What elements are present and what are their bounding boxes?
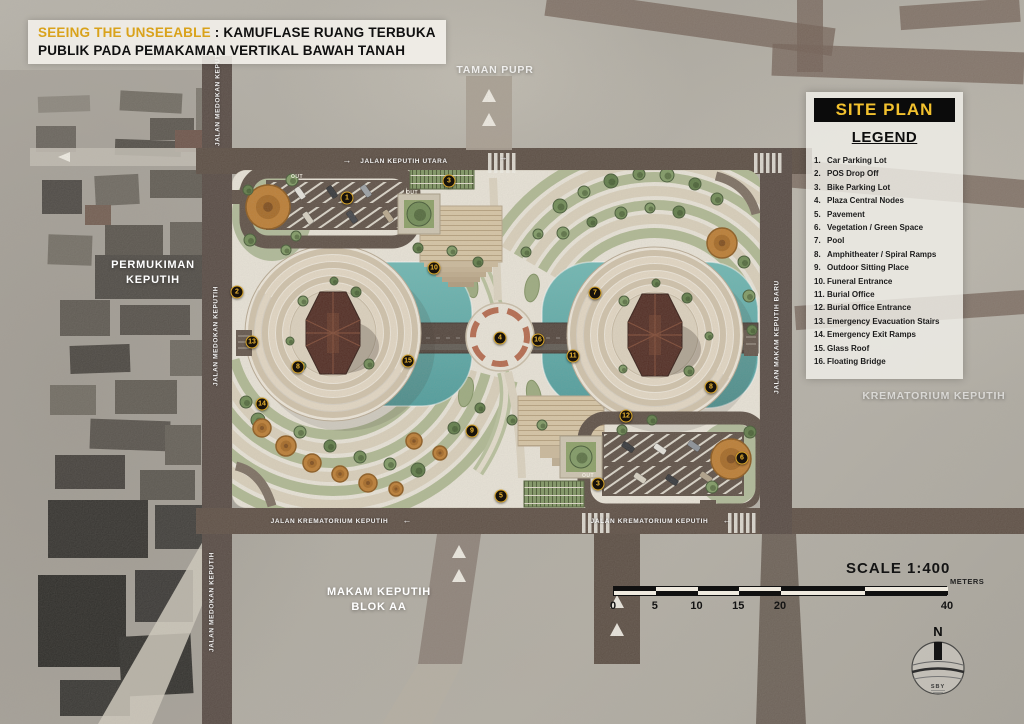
legend-item-label: Plaza Central Nodes xyxy=(827,194,957,207)
title-line1-rest: KAMUFLASE RUANG TERBUKA xyxy=(223,25,435,40)
street-label-medokan-keputih: JALAN MEDOKAN KEPUTIH xyxy=(213,286,220,386)
legend-item-number: 3. xyxy=(812,181,827,194)
out-marking: OUT xyxy=(406,190,418,196)
legend-item-number: 10. xyxy=(812,275,827,288)
map-marker-1: 1 xyxy=(341,192,354,205)
map-marker-14: 14 xyxy=(256,398,269,411)
map-marker-3: 3 xyxy=(443,175,456,188)
legend-item-number: 13. xyxy=(812,315,827,328)
scale-segment xyxy=(614,591,656,595)
legend-item-label: Outdoor Sitting Place xyxy=(827,261,957,274)
street-label-makam-keputih-baru: JALAN MAKAM KEPUTIH BARU xyxy=(774,280,781,394)
legend-item-number: 8. xyxy=(812,248,827,261)
legend-item-number: 7. xyxy=(812,234,827,247)
area-label-permukiman-keputih: PERMUKIMAN KEPUTIH xyxy=(92,258,214,288)
legend-item: 11.Burial Office xyxy=(812,288,957,301)
legend-item: 10.Funeral Entrance xyxy=(812,275,957,288)
legend-item-label: Car Parking Lot xyxy=(827,154,957,167)
scale-segments xyxy=(613,586,947,596)
legend-item: 12.Burial Office Entrance xyxy=(812,301,957,314)
map-marker-9: 9 xyxy=(466,425,479,438)
scale-tick: 5 xyxy=(652,600,658,612)
map-marker-3: 3 xyxy=(592,478,605,491)
legend-item-number: 14. xyxy=(812,328,827,341)
map-marker-5: 5 xyxy=(495,490,508,503)
area-label-taman-pupr: TAMAN PUPR xyxy=(440,64,550,76)
legend-item-label: Amphitheater / Spiral Ramps xyxy=(827,248,957,261)
street-label-medokan-keputih: JALAN MEDOKAN KEPUTIH xyxy=(209,552,216,652)
compass-city-label: SBY xyxy=(931,684,945,690)
legend-item-number: 12. xyxy=(812,301,827,314)
map-marker-6: 6 xyxy=(736,452,749,465)
out-marking: OUT xyxy=(582,473,594,479)
scale-tick: 0 xyxy=(610,600,616,612)
title-separator: : xyxy=(211,25,224,40)
scale-tick: 10 xyxy=(690,600,702,612)
legend-item-number: 1. xyxy=(812,154,827,167)
project-title: SEEING THE UNSEEABLE : KAMUFLASE RUANG T… xyxy=(28,20,446,64)
legend-panel: SITE PLAN LEGEND 1.Car Parking Lot2.POS … xyxy=(806,92,963,379)
street-label-krematorium-keputih: JALAN KREMATORIUM KEPUTIH← xyxy=(271,515,412,525)
legend-list: 1.Car Parking Lot2.POS Drop Off3.Bike Pa… xyxy=(812,154,957,369)
legend-item: 16.Floating Bridge xyxy=(812,355,957,368)
scale-segment xyxy=(656,591,698,595)
direction-arrow: → xyxy=(499,152,508,162)
map-marker-2: 2 xyxy=(231,286,244,299)
compass-icon: SBY xyxy=(903,638,973,698)
legend-item-number: 4. xyxy=(812,194,827,207)
site-plan-board: SEEING THE UNSEEABLE : KAMUFLASE RUANG T… xyxy=(0,0,1024,724)
direction-arrow: → xyxy=(342,155,351,165)
legend-item-number: 6. xyxy=(812,221,827,234)
map-marker-4: 4 xyxy=(494,332,507,345)
scale-tick: 15 xyxy=(732,600,744,612)
legend-item-label: Emergency Exit Ramps xyxy=(827,328,957,341)
scale-segment xyxy=(865,591,949,595)
legend-item-label: Emergency Evacuation Stairs xyxy=(827,315,957,328)
scale-tick: 20 xyxy=(774,600,786,612)
out-marking: OUT xyxy=(291,174,303,180)
legend-item: 6.Vegetation / Green Space xyxy=(812,221,957,234)
area-label-krematorium-keputih: KREMATORIUM KEPUTIH xyxy=(838,390,1024,402)
map-marker-10: 10 xyxy=(428,262,441,275)
legend-item: 9.Outdoor Sitting Place xyxy=(812,261,957,274)
title-line2: PUBLIK PADA PEMAKAMAN VERTIKAL BAWAH TAN… xyxy=(38,42,436,60)
map-marker-13: 13 xyxy=(246,336,259,349)
legend-title: LEGEND xyxy=(812,129,957,146)
scale-segment xyxy=(739,591,781,595)
street-name-text: JALAN MEDOKAN KEPUTIH xyxy=(209,552,216,652)
map-marker-7: 7 xyxy=(589,287,602,300)
legend-item-number: 2. xyxy=(812,167,827,180)
legend-item: 13.Emergency Evacuation Stairs xyxy=(812,315,957,328)
title-highlight: SEEING THE UNSEEABLE xyxy=(38,25,211,40)
scale-tick: 40 xyxy=(941,600,953,612)
scale-segment xyxy=(698,591,740,595)
street-name-text: JALAN MEDOKAN KEPUTIH xyxy=(213,286,220,386)
legend-item: 15.Glass Roof xyxy=(812,342,957,355)
street-name-text: JALAN KREMATORIUM KEPUTIH xyxy=(271,518,389,525)
map-marker-11: 11 xyxy=(567,350,580,363)
legend-item: 8.Amphitheater / Spiral Ramps xyxy=(812,248,957,261)
legend-item-label: Pavement xyxy=(827,208,957,221)
legend-item-number: 15. xyxy=(812,342,827,355)
legend-item-label: Burial Office xyxy=(827,288,957,301)
legend-item-label: Pool xyxy=(827,234,957,247)
legend-item-number: 5. xyxy=(812,208,827,221)
street-name-text: JALAN KREMATORIUM KEPUTIH xyxy=(591,518,709,525)
direction-arrow: ← xyxy=(722,515,731,525)
map-marker-16: 16 xyxy=(532,334,545,347)
legend-item: 3.Bike Parking Lot xyxy=(812,181,957,194)
area-label-makam-keputih: MAKAM KEPUTIH BLOK AA xyxy=(318,585,440,615)
legend-item: 1.Car Parking Lot xyxy=(812,154,957,167)
legend-item-number: 11. xyxy=(812,288,827,301)
map-marker-12: 12 xyxy=(620,410,633,423)
legend-item-label: Glass Roof xyxy=(827,342,957,355)
north-compass: N SBY xyxy=(903,624,973,718)
title-line1: SEEING THE UNSEEABLE : KAMUFLASE RUANG T… xyxy=(38,24,436,42)
legend-item-label: Burial Office Entrance xyxy=(827,301,957,314)
map-marker-8: 8 xyxy=(292,361,305,374)
scale-segment xyxy=(781,591,865,595)
direction-arrow: ← xyxy=(402,515,411,525)
legend-item: 14.Emergency Exit Ramps xyxy=(812,328,957,341)
legend-item: 7.Pool xyxy=(812,234,957,247)
compass-north-label: N xyxy=(903,624,973,638)
map-marker-15: 15 xyxy=(402,355,415,368)
scale-units: METERS xyxy=(950,577,984,586)
street-label-keputih-utara: →JALAN KEPUTIH UTARA xyxy=(342,155,447,165)
legend-item: 2.POS Drop Off xyxy=(812,167,957,180)
street-name-text: JALAN KEPUTIH UTARA xyxy=(360,158,447,165)
panel-title: SITE PLAN xyxy=(814,98,955,122)
legend-item: 5.Pavement xyxy=(812,208,957,221)
street-name-text: JALAN MAKAM KEPUTIH BARU xyxy=(774,280,781,394)
scale-bar: SCALE 1:400 METERS 0510152040 xyxy=(608,560,1024,616)
legend-item-label: Vegetation / Green Space xyxy=(827,221,957,234)
legend-item-label: Funeral Entrance xyxy=(827,275,957,288)
map-marker-8: 8 xyxy=(705,381,718,394)
legend-item-number: 9. xyxy=(812,261,827,274)
legend-item-label: Floating Bridge xyxy=(827,355,957,368)
legend-item-label: POS Drop Off xyxy=(827,167,957,180)
legend-item-label: Bike Parking Lot xyxy=(827,181,957,194)
street-label-krematorium-keputih: JALAN KREMATORIUM KEPUTIH← xyxy=(591,515,732,525)
scale-title: SCALE 1:400 xyxy=(846,560,950,577)
legend-item: 4.Plaza Central Nodes xyxy=(812,194,957,207)
legend-item-number: 16. xyxy=(812,355,827,368)
